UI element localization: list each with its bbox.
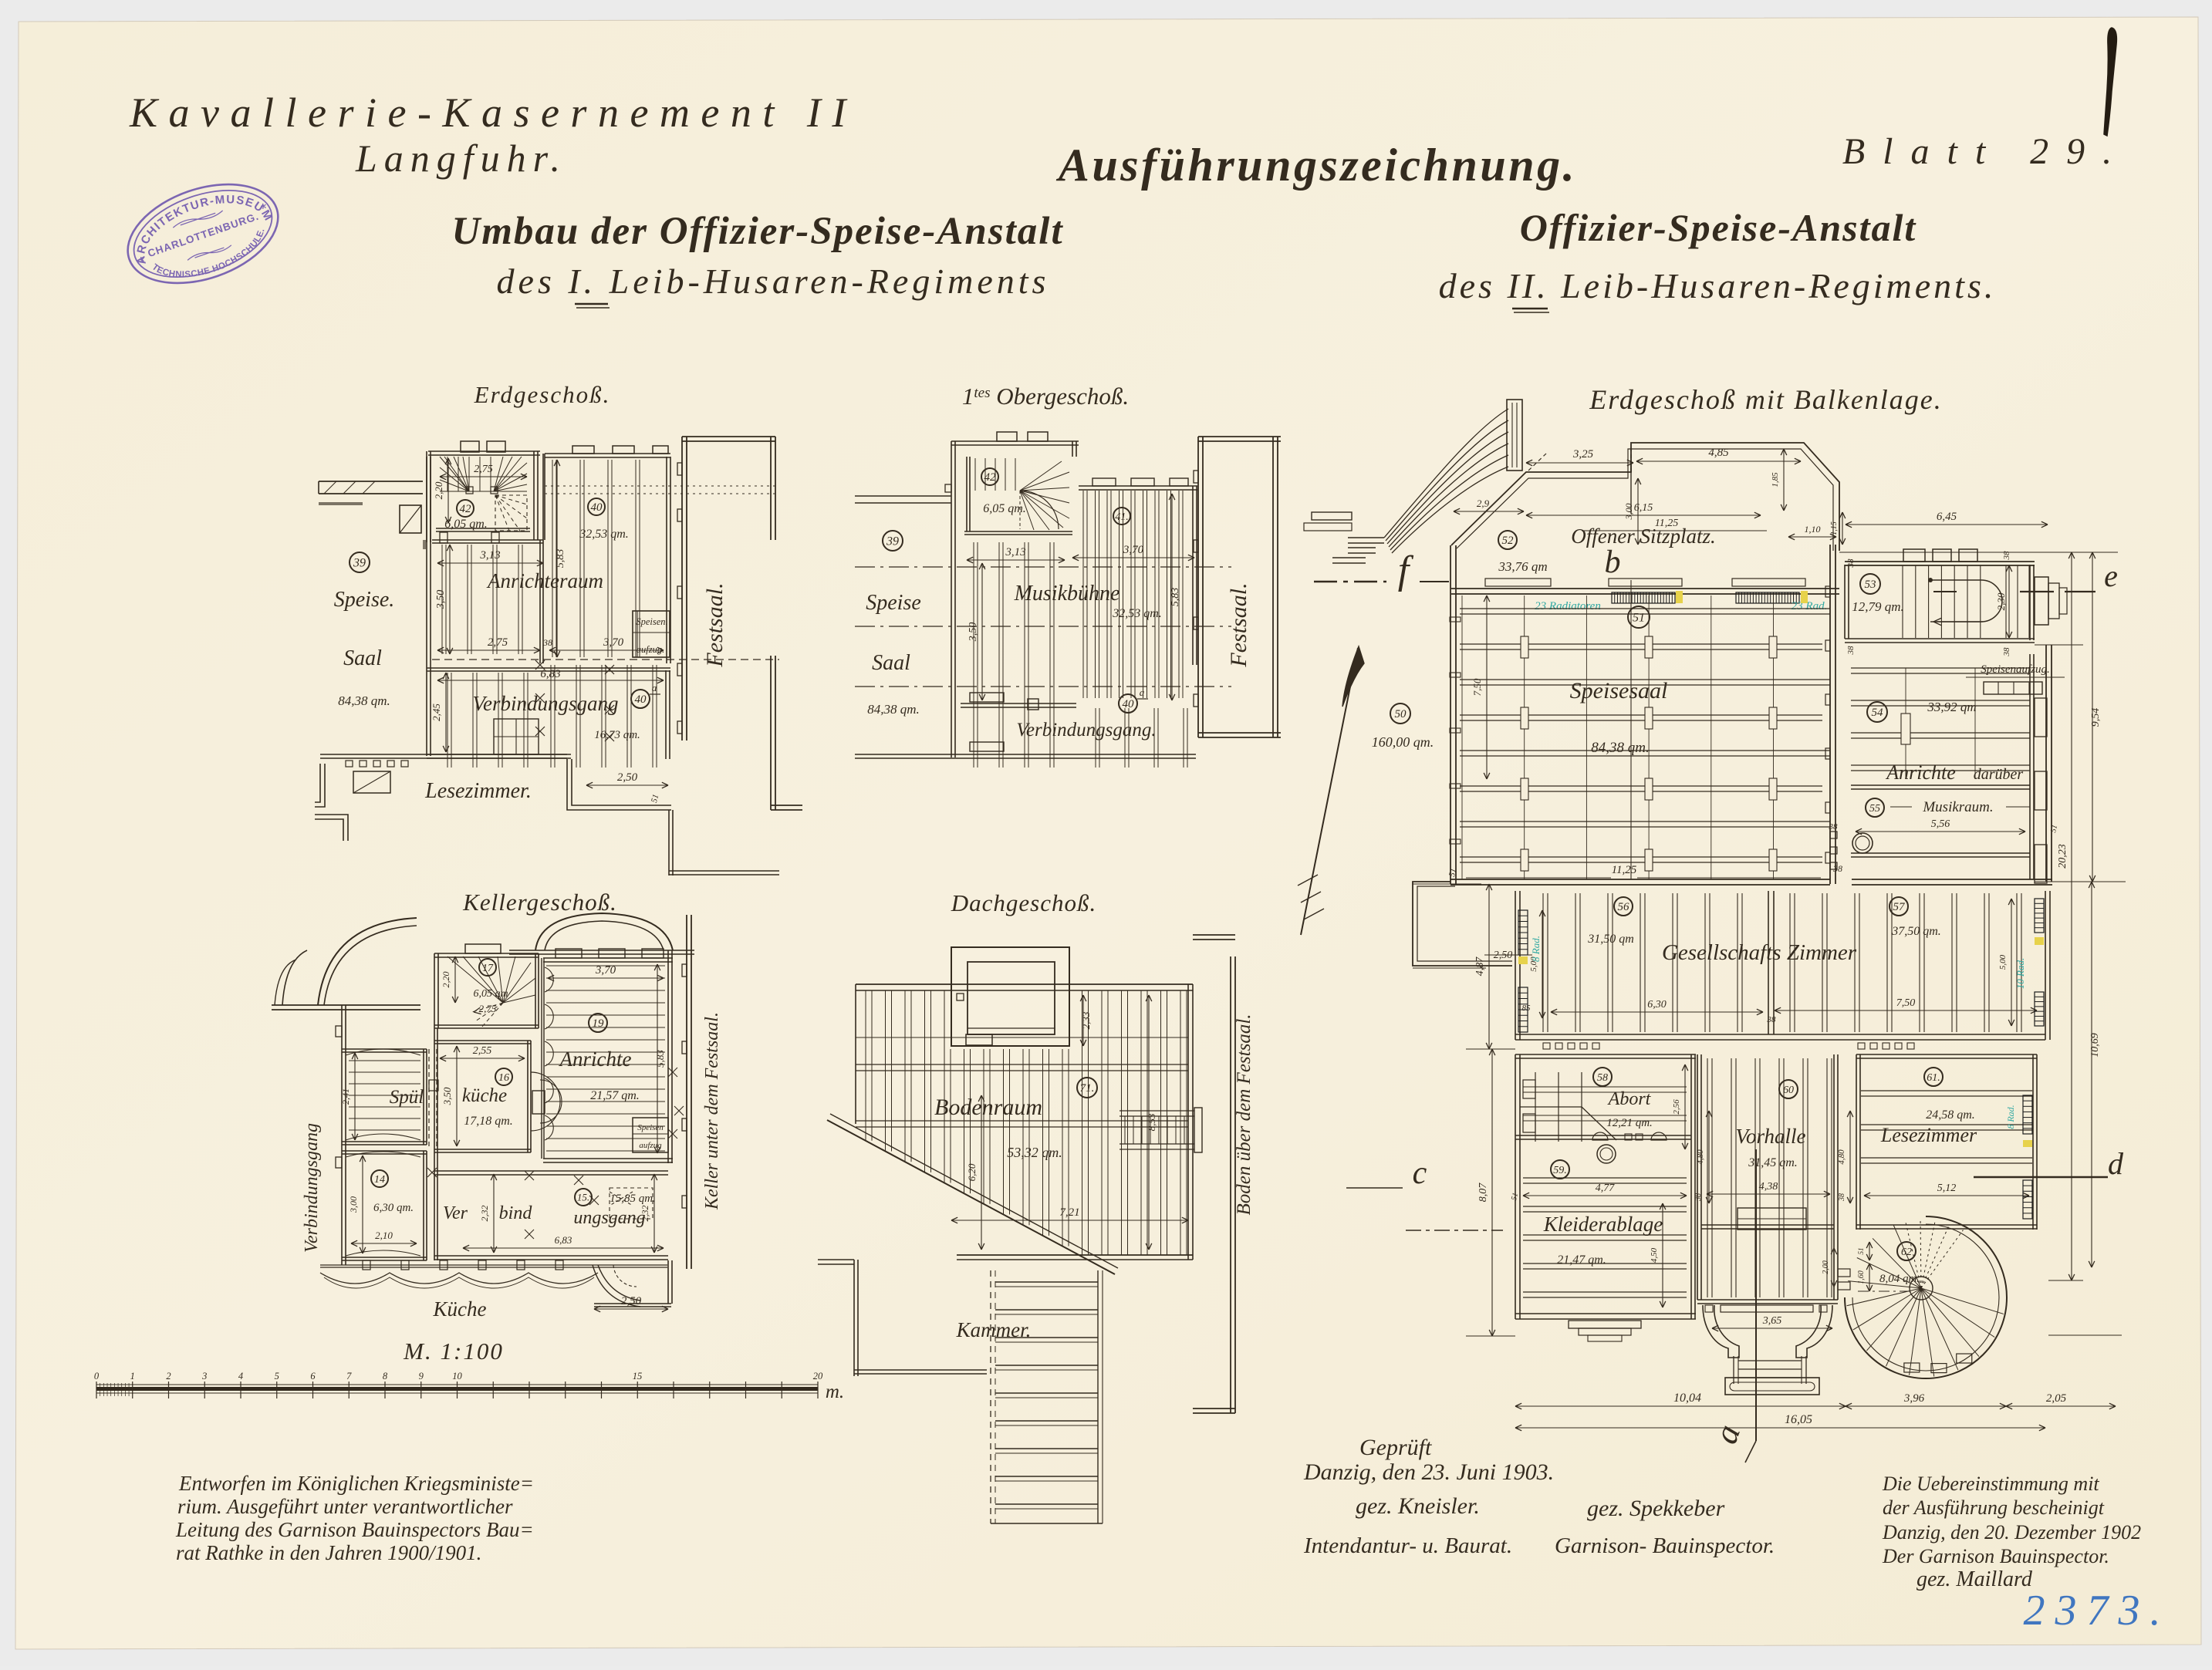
svg-text:2: 2 — [166, 1371, 171, 1382]
svg-text:2,9: 2,9 — [1477, 498, 1490, 509]
svg-text:71.: 71. — [1080, 1082, 1095, 1095]
svg-text:des II. Leib-Husaren-Regiment: des II. Leib-Husaren-Regiments. — [1439, 266, 1997, 305]
svg-text:Der Garnison Bauinspector.: Der Garnison Bauinspector. — [1882, 1545, 2109, 1567]
svg-text:Lesezimmer.: Lesezimmer. — [424, 779, 532, 803]
svg-text:1,60: 1,60 — [1857, 1270, 1866, 1284]
svg-text:38: 38 — [1694, 1193, 1703, 1202]
svg-text:Saal: Saal — [872, 651, 910, 675]
svg-text:42: 42 — [460, 503, 472, 515]
svg-text:10,04: 10,04 — [1673, 1392, 1701, 1405]
svg-text:Anrichteraum: Anrichteraum — [486, 569, 603, 592]
svg-text:2,33: 2,33 — [1080, 1011, 1092, 1029]
svg-text:31,50 qm: 31,50 qm — [1587, 933, 1634, 946]
svg-text:Erdgeschoß.: Erdgeschoß. — [474, 381, 611, 408]
svg-text:6,30 qm.: 6,30 qm. — [373, 1202, 414, 1214]
svg-text:2,50: 2,50 — [617, 771, 638, 784]
svg-text:Boden über dem Festsaal.: Boden über dem Festsaal. — [1234, 1014, 1255, 1215]
svg-text:16,05: 16,05 — [1785, 1413, 1812, 1426]
svg-text:2373.: 2373. — [2024, 1587, 2171, 1635]
svg-text:Danzig, den 23. Juni 1903.: Danzig, den 23. Juni 1903. — [1303, 1459, 1554, 1485]
svg-text:Erdgeschoß mit Balkenlage.: Erdgeschoß mit Balkenlage. — [1589, 384, 1943, 415]
svg-text:40: 40 — [1123, 698, 1135, 710]
svg-text:Umbau der Offizier-Speise-Anst: Umbau der Offizier-Speise-Anstalt — [451, 210, 1063, 253]
svg-text:5,12: 5,12 — [1937, 1182, 1957, 1194]
svg-text:Musikbühne: Musikbühne — [1014, 582, 1120, 606]
svg-text:9,54: 9,54 — [2090, 708, 2102, 727]
svg-text:6,30: 6,30 — [1647, 999, 1667, 1010]
svg-text:Speisesaal: Speisesaal — [1570, 678, 1668, 703]
svg-text:4,77: 4,77 — [1596, 1182, 1616, 1194]
svg-text:55: 55 — [1869, 803, 1880, 815]
svg-text:Offizier-Speise-Anstalt: Offizier-Speise-Anstalt — [1520, 206, 1917, 249]
svg-text:23 Radiatoren: 23 Radiatoren — [1535, 600, 1601, 612]
svg-text:Ver: Ver — [443, 1203, 468, 1223]
svg-text:41.: 41. — [1115, 511, 1129, 523]
svg-text:Dachgeschoß.: Dachgeschoß. — [951, 889, 1096, 916]
svg-text:gez. Kneisler.: gez. Kneisler. — [1356, 1493, 1480, 1519]
svg-text:7: 7 — [346, 1371, 352, 1382]
svg-text:10 Rad.: 10 Rad. — [2014, 958, 2026, 989]
svg-text:2,20: 2,20 — [441, 972, 451, 988]
svg-text:Intendantur- u. Baurat.: Intendantur- u. Baurat. — [1303, 1533, 1512, 1558]
svg-text:3: 3 — [201, 1371, 207, 1382]
svg-text:2,05: 2,05 — [2046, 1392, 2067, 1405]
svg-text:Die Uebereinstimmung mit: Die Uebereinstimmung mit — [1882, 1473, 2099, 1495]
svg-text:e: e — [2104, 558, 2118, 593]
svg-text:21,47 qm.: 21,47 qm. — [1557, 1253, 1606, 1267]
svg-text:4,80: 4,80 — [1837, 1149, 1846, 1165]
svg-text:c: c — [1413, 1156, 1427, 1191]
svg-text:Verbindungsgang: Verbindungsgang — [473, 692, 619, 715]
svg-text:38: 38 — [1846, 558, 1856, 568]
svg-text:2,41: 2,41 — [340, 1088, 351, 1105]
svg-text:2,50: 2,50 — [1494, 950, 1513, 961]
svg-text:54: 54 — [1872, 707, 1884, 719]
svg-text:6,05 qm: 6,05 qm — [473, 988, 508, 1000]
svg-text:59.: 59. — [1553, 1165, 1567, 1176]
svg-text:bind: bind — [499, 1203, 533, 1223]
svg-text:40: 40 — [591, 501, 603, 514]
svg-text:17,18 qm.: 17,18 qm. — [464, 1115, 513, 1128]
svg-text:60: 60 — [1783, 1085, 1794, 1096]
svg-text:61.: 61. — [1927, 1072, 1940, 1084]
svg-text:3,50: 3,50 — [441, 1087, 453, 1105]
svg-text:8,07: 8,07 — [1477, 1182, 1489, 1203]
svg-text:Keller unter dem Festsaal.: Keller unter dem Festsaal. — [702, 1012, 722, 1210]
svg-text:5,83: 5,83 — [654, 1050, 666, 1068]
svg-text:Verbindungsgang.: Verbindungsgang. — [1016, 720, 1156, 741]
svg-text:21,57 qm.: 21,57 qm. — [590, 1089, 640, 1102]
svg-text:51: 51 — [1633, 611, 1645, 624]
svg-text:8,04 qm.: 8,04 qm. — [1879, 1273, 1920, 1285]
svg-text:6: 6 — [310, 1371, 316, 1382]
svg-text:4,85: 4,85 — [1708, 447, 1729, 459]
svg-text:Anrichte: Anrichte — [1885, 761, 1956, 784]
svg-text:160,00 qm.: 160,00 qm. — [1372, 734, 1434, 750]
svg-text:1: 1 — [130, 1371, 135, 1382]
svg-text:11,25: 11,25 — [1612, 864, 1637, 876]
svg-text:4,80: 4,80 — [1696, 1149, 1705, 1165]
svg-text:m.: m. — [826, 1382, 844, 1402]
svg-text:4,50: 4,50 — [1650, 1247, 1659, 1263]
svg-text:Bodenraum: Bodenraum — [934, 1095, 1042, 1120]
svg-text:24,58 qm.: 24,58 qm. — [1926, 1108, 1975, 1122]
svg-text:aufzug: aufzug — [639, 1141, 662, 1150]
svg-text:Garnison- Bauinspector.: Garnison- Bauinspector. — [1555, 1533, 1775, 1558]
svg-text:7,21: 7,21 — [1059, 1206, 1079, 1219]
svg-text:38: 38 — [1838, 1193, 1846, 1202]
svg-text:aufzug.: aufzug. — [637, 644, 664, 655]
svg-text:38: 38 — [2002, 647, 2011, 657]
svg-text:2,10: 2,10 — [375, 1230, 393, 1241]
svg-text:15: 15 — [633, 1371, 643, 1382]
svg-text:15,85 qm.: 15,85 qm. — [610, 1193, 656, 1205]
svg-text:Kavallerie-Kasernement II: Kavallerie-Kasernement II — [129, 89, 857, 136]
svg-text:39: 39 — [886, 535, 899, 548]
svg-text:Gesellschafts Zimmer: Gesellschafts Zimmer — [1662, 940, 1857, 965]
svg-text:8 Rad.: 8 Rad. — [2005, 1105, 2016, 1129]
svg-text:5,83: 5,83 — [555, 549, 566, 568]
svg-text:5,00: 5,00 — [1998, 954, 2008, 970]
svg-text:3,65: 3,65 — [1762, 1315, 1782, 1327]
svg-text:33,76 qm: 33,76 qm — [1498, 559, 1547, 574]
svg-text:32,53 qm.: 32,53 qm. — [1112, 607, 1162, 620]
svg-text:40: 40 — [635, 693, 647, 706]
svg-text:6,45: 6,45 — [1937, 511, 1957, 523]
svg-text:3,70: 3,70 — [1123, 544, 1144, 556]
svg-text:Offener Sitzplatz.: Offener Sitzplatz. — [1571, 525, 1716, 548]
svg-text:Danzig, den 20. Dezember 1902: Danzig, den 20. Dezember 1902 — [1882, 1521, 2141, 1543]
svg-text:küche: küche — [462, 1085, 507, 1106]
svg-text:gez. Maillard: gez. Maillard — [1917, 1567, 2033, 1591]
svg-text:Anrichte: Anrichte — [559, 1048, 632, 1071]
svg-text:33,92 qm: 33,92 qm — [1927, 700, 1976, 714]
svg-text:Speisen.: Speisen. — [636, 616, 667, 627]
svg-text:Speise.: Speise. — [334, 588, 395, 612]
svg-text:3,70: 3,70 — [595, 964, 616, 977]
svg-text:38: 38 — [1829, 822, 1839, 832]
svg-text:84,38 qm.: 84,38 qm. — [1591, 740, 1649, 756]
svg-text:6,20: 6,20 — [966, 1163, 978, 1181]
svg-text:16: 16 — [498, 1072, 509, 1084]
svg-text:56: 56 — [1618, 901, 1630, 913]
svg-text:20,23: 20,23 — [2057, 844, 2068, 869]
svg-text:3,25: 3,25 — [1572, 448, 1594, 461]
svg-text:62: 62 — [1901, 1247, 1912, 1258]
svg-text:1,85: 1,85 — [1771, 472, 1780, 488]
svg-text:2,55: 2,55 — [473, 1045, 492, 1057]
svg-text:M. 1:100: M. 1:100 — [403, 1338, 504, 1365]
svg-text:Spül: Spül — [390, 1087, 424, 1108]
svg-text:16,73 qm.: 16,73 qm. — [594, 729, 640, 741]
svg-text:53,32 qm.: 53,32 qm. — [1007, 1145, 1062, 1160]
svg-text:53: 53 — [1865, 579, 1876, 591]
svg-text:rat Rathke in den Jahren 1900/: rat Rathke in den Jahren 1900/1901. — [176, 1541, 481, 1564]
svg-text:57: 57 — [1893, 901, 1906, 913]
svg-text:12,21 qm.: 12,21 qm. — [1606, 1117, 1653, 1129]
svg-text:31,45 qm.: 31,45 qm. — [1748, 1156, 1798, 1169]
svg-text:39: 39 — [353, 556, 366, 569]
svg-text:Blatt 29.: Blatt 29. — [1842, 131, 2129, 172]
svg-text:3,96: 3,96 — [1903, 1392, 1925, 1405]
svg-text:5,56: 5,56 — [1931, 818, 1950, 830]
svg-text:0: 0 — [94, 1371, 100, 1382]
svg-text:a: a — [1140, 687, 1145, 698]
svg-text:8: 8 — [383, 1371, 388, 1382]
svg-text:14: 14 — [374, 1174, 385, 1186]
svg-text:Kleiderablage: Kleiderablage — [1543, 1213, 1663, 1236]
svg-text:10: 10 — [452, 1371, 462, 1382]
svg-text:37,50 qm.: 37,50 qm. — [1891, 925, 1941, 938]
svg-text:17: 17 — [482, 963, 494, 974]
svg-text:85: 85 — [1522, 1004, 1532, 1013]
svg-text:3,13: 3,13 — [1005, 546, 1025, 558]
svg-text:38: 38 — [1767, 1015, 1777, 1024]
svg-text:Verbindungsgang: Verbindungsgang — [302, 1123, 322, 1253]
svg-text:Kellergeschoß.: Kellergeschoß. — [462, 889, 617, 916]
svg-text:Lesezimmer: Lesezimmer — [1880, 1124, 1977, 1146]
svg-text:84,38 qm.: 84,38 qm. — [338, 693, 390, 708]
svg-text:19: 19 — [593, 1017, 605, 1030]
svg-text:5: 5 — [275, 1371, 279, 1382]
svg-text:2,00: 2,00 — [1822, 1260, 1830, 1274]
svg-text:3,13: 3,13 — [479, 549, 500, 562]
svg-text:10,69: 10,69 — [2089, 1033, 2101, 1058]
svg-text:52: 52 — [1502, 535, 1515, 547]
svg-text:4,87: 4,87 — [1474, 956, 1486, 977]
svg-text:Festsaal.: Festsaal. — [702, 582, 728, 667]
svg-text:42: 42 — [984, 471, 997, 484]
svg-text:Vorhalle: Vorhalle — [1735, 1125, 1805, 1148]
svg-text:9: 9 — [419, 1371, 424, 1382]
svg-text:58: 58 — [1597, 1072, 1608, 1084]
svg-text:Entworfen im Königlichen Krieg: Entworfen im Königlichen Kriegsministe= — [178, 1472, 534, 1495]
svg-text:2,56: 2,56 — [1672, 1099, 1681, 1115]
svg-text:Speisen: Speisen — [637, 1123, 664, 1132]
svg-text:2,20: 2,20 — [433, 481, 444, 499]
svg-text:8 Rad.: 8 Rad. — [1530, 936, 1542, 962]
svg-text:4,38: 4,38 — [1759, 1181, 1778, 1193]
svg-text:Ausführungszeichnung.: Ausführungszeichnung. — [1055, 140, 1577, 191]
svg-text:50: 50 — [1395, 708, 1407, 720]
svg-text:rium. Ausgeführt unter verant: rium. Ausgeführt unter verantwortlicher — [177, 1495, 513, 1518]
svg-text:2,75: 2,75 — [488, 636, 508, 649]
svg-text:23 Rad.: 23 Rad. — [1792, 600, 1828, 612]
svg-text:6,83: 6,83 — [555, 1234, 572, 1246]
svg-text:12,79 qm.: 12,79 qm. — [1852, 599, 1904, 614]
svg-text:3,00: 3,00 — [1623, 504, 1634, 521]
svg-text:5,83: 5,83 — [1170, 588, 1181, 607]
svg-text:Abort: Abort — [1607, 1089, 1652, 1109]
svg-text:20: 20 — [813, 1371, 823, 1382]
svg-text:Saal: Saal — [343, 646, 382, 670]
svg-text:84,38 qm.: 84,38 qm. — [867, 702, 920, 717]
svg-text:3,70: 3,70 — [603, 636, 624, 649]
svg-text:6,05 qm.: 6,05 qm. — [983, 502, 1026, 515]
svg-text:51: 51 — [1857, 1248, 1865, 1255]
svg-text:3,00: 3,00 — [348, 1196, 359, 1213]
svg-text:der Ausführung bescheinigt: der Ausführung bescheinigt — [1883, 1496, 2105, 1519]
svg-text:Langfuhr.: Langfuhr. — [355, 137, 567, 180]
svg-text:2,75: 2,75 — [479, 1003, 497, 1014]
svg-text:6,15: 6,15 — [1634, 502, 1653, 514]
svg-text:7,50: 7,50 — [1896, 997, 1916, 1009]
svg-text:Geprüft: Geprüft — [1359, 1435, 1432, 1460]
svg-text:Festsaal.: Festsaal. — [1226, 582, 1251, 667]
svg-text:1,10: 1,10 — [1805, 524, 1821, 535]
svg-text:38: 38 — [542, 637, 552, 648]
svg-text:Leitung des Garnison Bauinspec: Leitung des Garnison Bauinspectors Bau= — [175, 1518, 534, 1541]
svg-text:2,50: 2,50 — [621, 1295, 642, 1307]
svg-text:2,30: 2,30 — [1995, 592, 2007, 610]
svg-text:2,45: 2,45 — [431, 703, 442, 721]
svg-text:des I. Leib-Husaren-Regiments: des I. Leib-Husaren-Regiments — [497, 261, 1050, 301]
svg-text:Küche: Küche — [433, 1297, 487, 1321]
svg-text:38: 38 — [1846, 646, 1856, 656]
svg-text:gez. Spekkeber: gez. Spekkeber — [1587, 1496, 1725, 1521]
svg-text:15.: 15. — [577, 1191, 589, 1203]
svg-text:b: b — [1605, 545, 1621, 580]
svg-text:d: d — [2108, 1146, 2124, 1181]
svg-text:2,75: 2,75 — [474, 464, 493, 475]
svg-text:7,50: 7,50 — [1471, 678, 1483, 696]
svg-text:Musikraum.: Musikraum. — [1922, 799, 1993, 815]
svg-text:Speise: Speise — [866, 591, 921, 615]
svg-text:4: 4 — [238, 1371, 243, 1382]
svg-text:3,50: 3,50 — [435, 590, 447, 610]
svg-text:32,53 qm.: 32,53 qm. — [579, 528, 629, 541]
svg-text:1,15: 1,15 — [1830, 521, 1839, 535]
svg-text:2,32: 2,32 — [479, 1206, 490, 1222]
svg-text:darüber: darüber — [1974, 766, 2024, 783]
svg-text:6,05 qm.: 6,05 qm. — [444, 518, 488, 531]
